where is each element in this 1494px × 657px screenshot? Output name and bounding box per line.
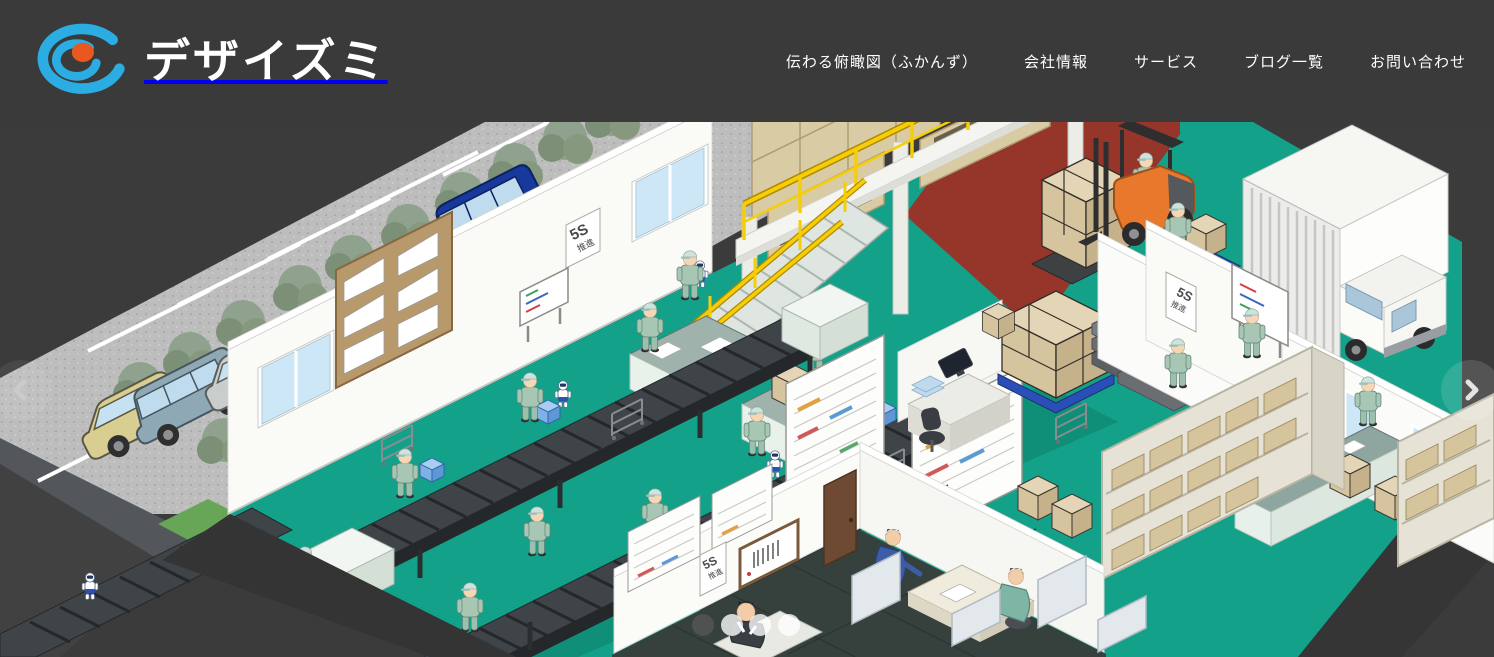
nav-item-company[interactable]: 会社情報 bbox=[1024, 51, 1088, 72]
logo[interactable]: デザイズミ bbox=[30, 20, 388, 102]
carousel-dot[interactable] bbox=[721, 614, 743, 636]
cardboard-box bbox=[1052, 494, 1092, 538]
nav-item-blog[interactable]: ブログ一覧 bbox=[1244, 51, 1324, 72]
chevron-left-icon bbox=[10, 379, 32, 401]
nav-item-fukanzu[interactable]: 伝わる俯瞰図（ふかんず） bbox=[786, 51, 978, 72]
carousel-dot[interactable] bbox=[692, 614, 714, 636]
carousel-dot[interactable] bbox=[749, 614, 771, 636]
carousel-dot[interactable] bbox=[778, 614, 800, 636]
carousel-next-button[interactable] bbox=[1441, 360, 1494, 420]
swirl-logo-icon bbox=[30, 20, 130, 102]
factory-isometric-illustration: 5S 推進 bbox=[0, 122, 1494, 657]
site-header: デザイズミ 伝わる俯瞰図（ふかんず） 会社情報 サービス ブログ一覧 お問い合わ… bbox=[0, 0, 1494, 122]
landing-page: デザイズミ 伝わる俯瞰図（ふかんず） 会社情報 サービス ブログ一覧 お問い合わ… bbox=[0, 0, 1494, 657]
open-box bbox=[982, 304, 1014, 339]
nav-item-contact[interactable]: お問い合わせ bbox=[1370, 51, 1466, 72]
logo-text: デザイズミ bbox=[144, 38, 388, 84]
hero-carousel: 5S 推進 bbox=[0, 122, 1494, 657]
chevron-right-icon bbox=[1460, 379, 1482, 401]
nav-item-service[interactable]: サービス bbox=[1134, 51, 1198, 72]
main-nav: 伝わる俯瞰図（ふかんず） 会社情報 サービス ブログ一覧 お問い合わせ bbox=[786, 51, 1466, 72]
